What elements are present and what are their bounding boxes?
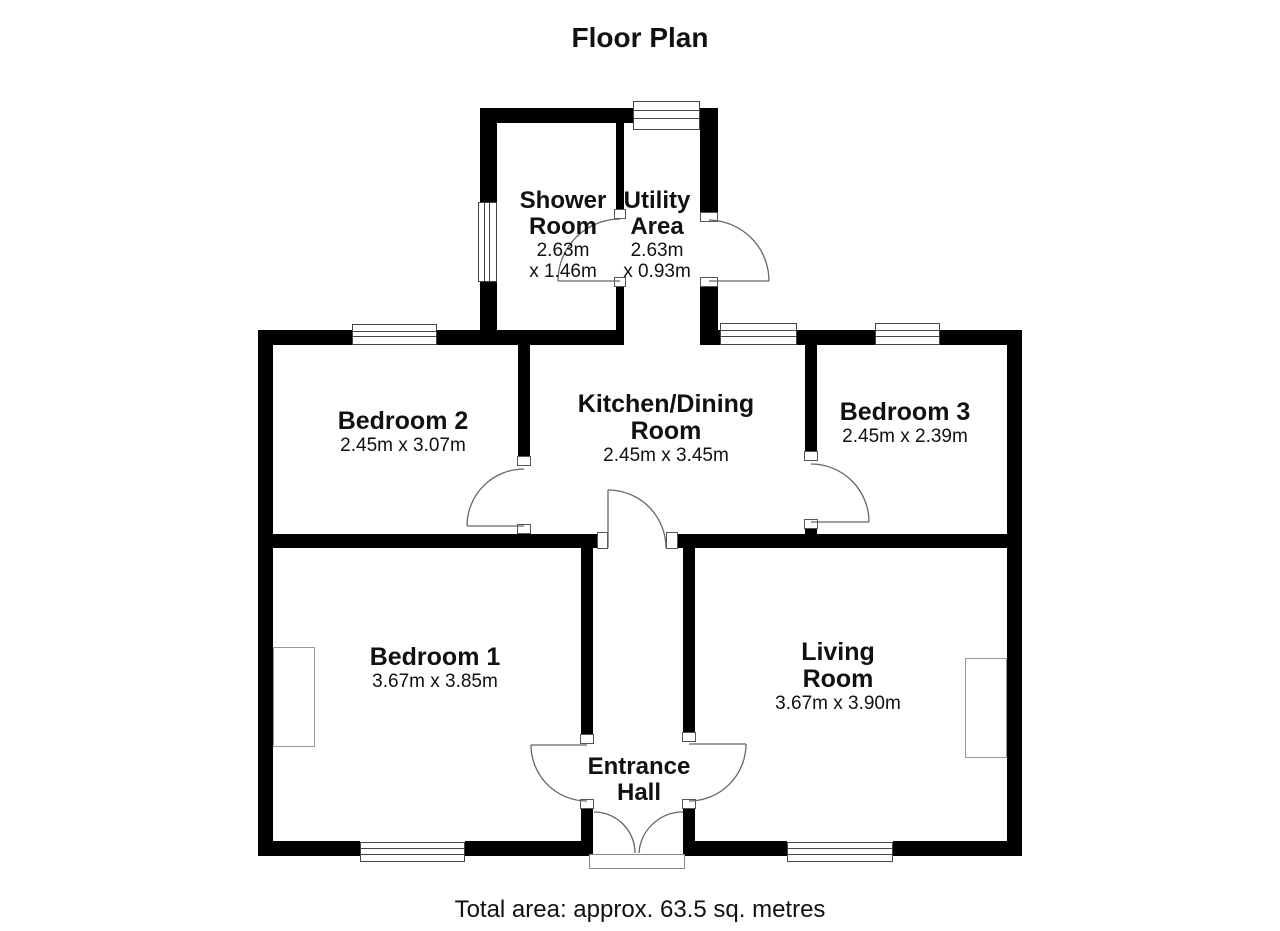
room-name-2: Room — [738, 666, 938, 693]
room-name: Bedroom 2 — [303, 408, 503, 435]
room-dimension-2: x 0.93m — [607, 261, 707, 282]
room-dimension: 2.45m x 2.39m — [805, 426, 1005, 447]
room-name-2: Room — [566, 418, 766, 445]
room-name: Living — [738, 639, 938, 666]
room-name-2: Area — [607, 214, 707, 240]
door-arc-bedroom2 — [467, 469, 524, 526]
door-arc-utility — [709, 220, 769, 281]
room-name-2: Hall — [564, 780, 714, 806]
room-label-bedroom1: Bedroom 1 3.67m x 3.85m — [335, 644, 535, 692]
total-area-text: Total area: approx. 63.5 sq. metres — [0, 896, 1280, 924]
room-name: Bedroom 3 — [805, 399, 1005, 426]
door-arc-kitchen — [608, 490, 666, 548]
room-dimension: 3.67m x 3.85m — [335, 671, 535, 692]
room-dimension: 3.67m x 3.90m — [738, 693, 938, 714]
room-dimension: 2.63m — [607, 240, 707, 261]
room-label-utility: Utility Area 2.63m x 0.93m — [607, 188, 707, 282]
door-arc-entrance-right — [639, 812, 683, 853]
door-arc-entrance-left — [594, 812, 635, 853]
room-label-bedroom3: Bedroom 3 2.45m x 2.39m — [805, 399, 1005, 447]
room-label-bedroom2: Bedroom 2 2.45m x 3.07m — [303, 408, 503, 456]
door-arc-bedroom3 — [811, 464, 869, 522]
room-name: Entrance — [564, 754, 714, 780]
room-name: Utility — [607, 188, 707, 214]
room-label-entrance-hall: Entrance Hall — [564, 754, 714, 806]
room-name: Kitchen/Dining — [566, 391, 766, 418]
room-name: Bedroom 1 — [335, 644, 535, 671]
room-label-kitchen: Kitchen/Dining Room 2.45m x 3.45m — [566, 391, 766, 466]
room-label-living: Living Room 3.67m x 3.90m — [738, 639, 938, 714]
room-dimension: 2.45m x 3.45m — [566, 445, 766, 466]
floor-plan-page: Floor Plan — [0, 0, 1280, 931]
room-dimension: 2.45m x 3.07m — [303, 435, 503, 456]
